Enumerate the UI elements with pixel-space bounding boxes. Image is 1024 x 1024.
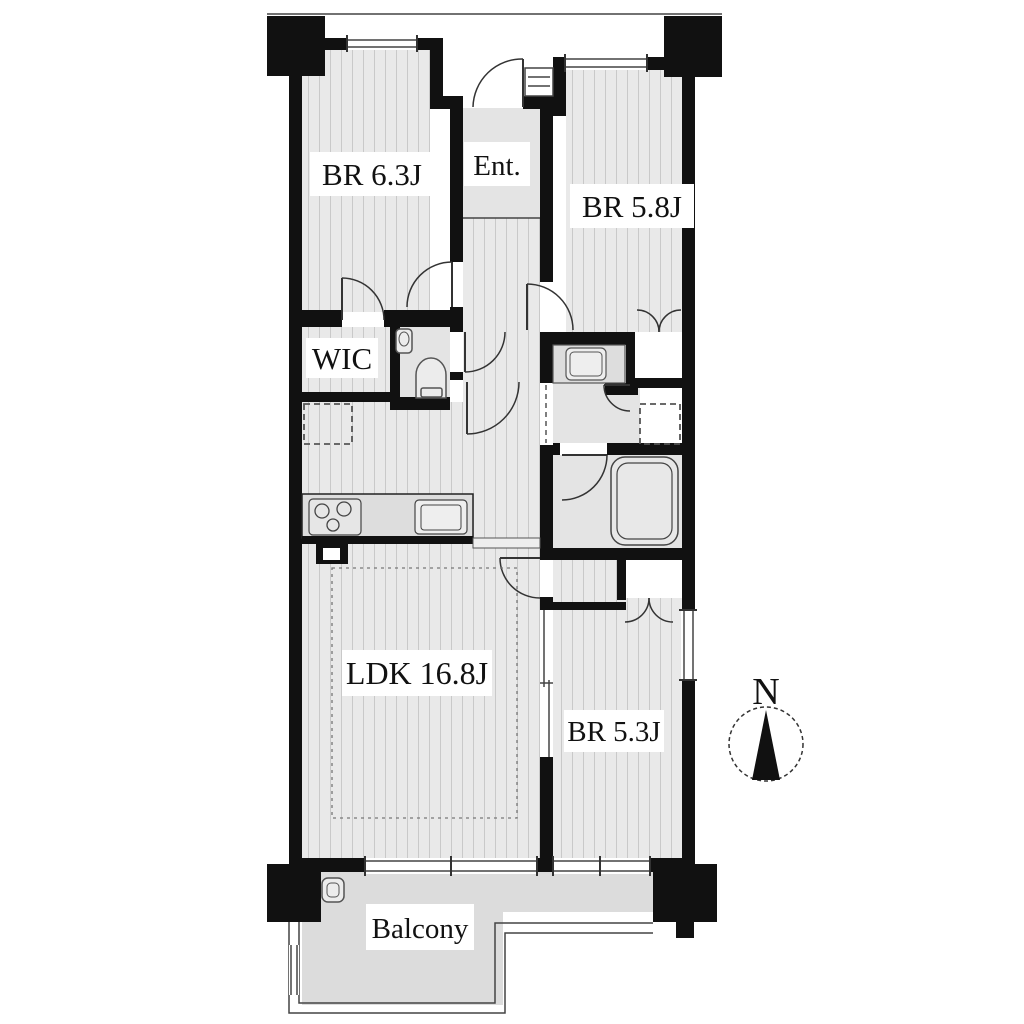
br58-window — [565, 54, 647, 72]
ldk-balcony-sliding-window — [365, 856, 537, 876]
br53-closet-floor — [626, 560, 682, 598]
wall-segment — [617, 555, 626, 600]
compass-north-label: N — [752, 671, 779, 713]
wall-segment — [302, 858, 365, 872]
wall-segment — [540, 103, 553, 282]
hallway-floor — [463, 218, 540, 410]
br53-label: BR 5.3J — [567, 716, 660, 748]
wall-segment — [289, 76, 302, 866]
vanity — [553, 345, 625, 383]
balcony-floor — [302, 872, 653, 1005]
br53-east-window — [679, 610, 697, 680]
wall-segment — [540, 548, 682, 560]
floorplan-canvas: BR 6.3J Ent. BR 5.8J WIC LDK 16.8J BR 5.… — [0, 0, 1024, 1024]
wall-segment — [540, 332, 553, 383]
pillar-bottom-right-stub — [676, 922, 694, 938]
wall-segment — [450, 372, 463, 380]
stove — [309, 499, 361, 535]
br53-sliding-door — [540, 610, 553, 757]
wall-segment — [682, 77, 695, 610]
compass: N — [729, 671, 803, 781]
washing-machine-space — [640, 404, 680, 444]
wall-segment — [384, 310, 450, 327]
br63-label: BR 6.3J — [322, 157, 422, 192]
wall-segment — [537, 858, 553, 872]
wall-segment — [540, 757, 553, 863]
wall-segment — [682, 680, 695, 864]
wall-segment — [302, 310, 342, 327]
br53-alcove-floor — [553, 560, 617, 602]
br53-balcony-window — [553, 856, 650, 876]
pillar-bottom-left — [267, 864, 321, 922]
floorplan-svg: BR 6.3J Ent. BR 5.8J WIC LDK 16.8J BR 5.… — [0, 0, 1024, 1024]
wall-segment — [390, 397, 450, 410]
wall-segment — [553, 443, 560, 455]
ldk-floor — [302, 402, 540, 858]
wall-segment — [626, 332, 635, 378]
wall-segment — [540, 550, 553, 557]
balcony-side-window — [289, 945, 299, 995]
counter-return — [473, 538, 540, 548]
counter-front-wall — [302, 536, 473, 544]
pillar-bottom-right — [653, 864, 717, 922]
wall-segment — [540, 445, 553, 550]
wic-label: WIC — [312, 341, 372, 376]
wall-segment — [450, 96, 463, 262]
pillar-top-right — [664, 16, 722, 77]
wall-segment — [553, 602, 626, 610]
bathtub — [611, 457, 678, 545]
kitchen-sink — [415, 500, 467, 534]
compass-needle-icon — [752, 710, 780, 780]
kitchen-duct-inner — [323, 548, 340, 560]
wall-segment — [553, 332, 635, 345]
wall-segment — [302, 38, 347, 50]
wall-segment — [302, 392, 400, 402]
balcony-label: Balcony — [372, 913, 469, 945]
br58-label: BR 5.8J — [582, 189, 682, 224]
br63-window — [347, 35, 417, 52]
balcony-faucet — [322, 878, 344, 902]
wall-segment — [647, 57, 664, 70]
wall-segment — [450, 307, 463, 332]
wall-segment — [650, 858, 682, 872]
shoe-cabinet — [525, 68, 553, 96]
ent-label: Ent. — [473, 150, 521, 182]
wall-segment — [540, 597, 553, 610]
br58-closet-floor — [635, 332, 682, 378]
ldk-label: LDK 16.8J — [346, 655, 488, 691]
